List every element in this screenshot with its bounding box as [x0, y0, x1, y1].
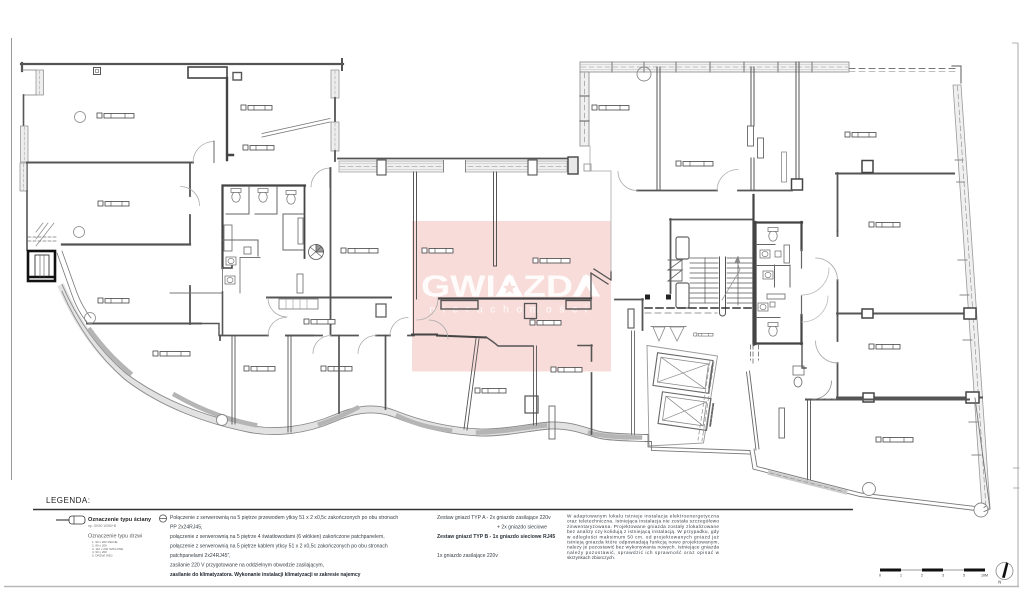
- svg-text:Oznaczenie typu drzwi: Oznaczenie typu drzwi: [88, 534, 142, 540]
- svg-text:Połączenie z serwerownią na 5: Połączenie z serwerownią na 5 piętrze pr…: [170, 515, 398, 521]
- svg-text:np. GK50 10/50+B: np. GK50 10/50+B: [88, 524, 117, 528]
- svg-text:Zestaw gniazd TYP B - 1x gniaz: Zestaw gniazd TYP B - 1x gniazdo sieciow…: [437, 534, 555, 540]
- svg-text:+ 2x gniazdo sieciowe: + 2x gniazdo sieciowe: [497, 525, 547, 531]
- svg-text:Zestaw gniazd TYP A - 2x gniaz: Zestaw gniazd TYP A - 2x gniazdo zasilaj…: [437, 515, 551, 521]
- svg-text:5: 5: [963, 574, 965, 578]
- svg-text:skrzynkach zbiorczych.: skrzynkach zbiorczych.: [567, 555, 615, 560]
- svg-text:0: 0: [879, 574, 881, 578]
- svg-text:1x gniazdo zasilające 220v: 1x gniazdo zasilające 220v: [437, 553, 498, 559]
- svg-text:połączenie z serwerownią na 5: połączenie z serwerownią na 5 piętrze 4 …: [170, 534, 385, 540]
- svg-text:zasilanie do klimatyzatora. Wy: zasilanie do klimatyzatora. Wykonanie in…: [170, 572, 361, 578]
- svg-text:LEGENDA:: LEGENDA:: [46, 496, 90, 505]
- svg-text:patchpanelami 2x24RJ45”,: patchpanelami 2x24RJ45”,: [170, 553, 231, 559]
- svg-text:PP 2x24RJ45,: PP 2x24RJ45,: [170, 525, 202, 531]
- svg-text:połączenie z serwerownią na 5: połączenie z serwerownią na 5 piętrze ka…: [170, 544, 388, 550]
- svg-text:zasilanie 220 V przygotowane n: zasilanie 220 V przygotowane na oddzieln…: [170, 563, 324, 569]
- svg-text:5. DRZWI WEJ.: 5. DRZWI WEJ.: [92, 554, 113, 558]
- svg-text:3: 3: [942, 574, 944, 578]
- svg-text:10M: 10M: [981, 574, 988, 578]
- svg-text:1: 1: [900, 574, 902, 578]
- svg-text:Oznaczenie typu ściany: Oznaczenie typu ściany: [88, 517, 152, 523]
- svg-text:2: 2: [921, 574, 923, 578]
